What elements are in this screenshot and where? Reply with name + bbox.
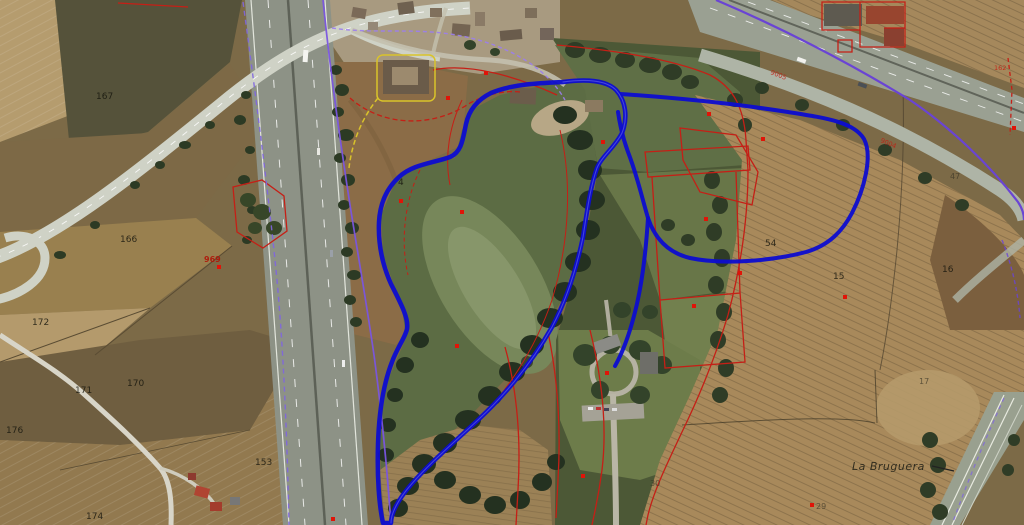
map-viewport[interactable]: 167 166 172 171 170 176 153 174 4 54 15 … — [0, 0, 1024, 525]
parcel-label: 30 — [650, 479, 660, 488]
parcel-label: 176 — [6, 426, 23, 436]
parcel-label: 174 — [86, 512, 103, 522]
parcel-label: 153 — [255, 458, 272, 468]
parcel-label: 167 — [96, 92, 113, 102]
place-name-label: La Bruguera — [852, 460, 925, 473]
parcel-label: 172 — [32, 318, 49, 328]
parcel-label: 170 — [127, 379, 144, 389]
road-code-label: 162 — [994, 64, 1006, 72]
parcel-label: 15 — [833, 272, 844, 282]
parcel-label: 16 — [942, 265, 954, 275]
satellite-map-canvas[interactable]: 167 166 172 171 170 176 153 174 4 54 15 … — [0, 0, 1024, 525]
parcel-label: 29 — [816, 502, 826, 511]
red-parcel-label: 969 — [204, 255, 221, 264]
parcel-label: 17 — [919, 377, 929, 386]
parcel-label: 171 — [75, 386, 92, 396]
parcel-label: 54 — [765, 239, 777, 249]
parcel-label: 166 — [120, 235, 137, 245]
parcel-label: 4 — [398, 178, 404, 188]
truck — [303, 50, 309, 62]
parcel-label: 47 — [950, 172, 960, 181]
